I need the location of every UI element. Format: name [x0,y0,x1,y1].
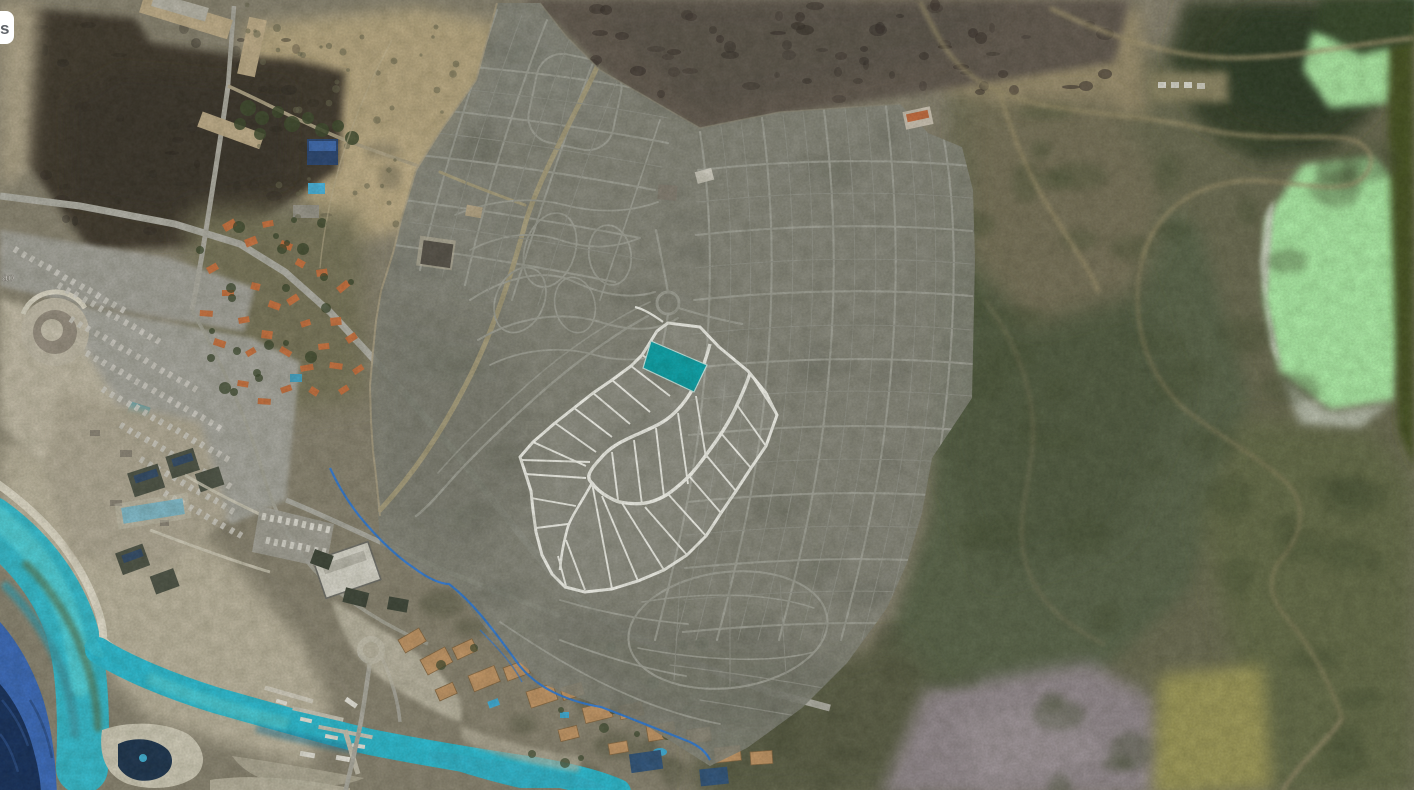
svg-text:ao: ao [2,272,14,284]
svg-text:s: s [0,19,9,38]
